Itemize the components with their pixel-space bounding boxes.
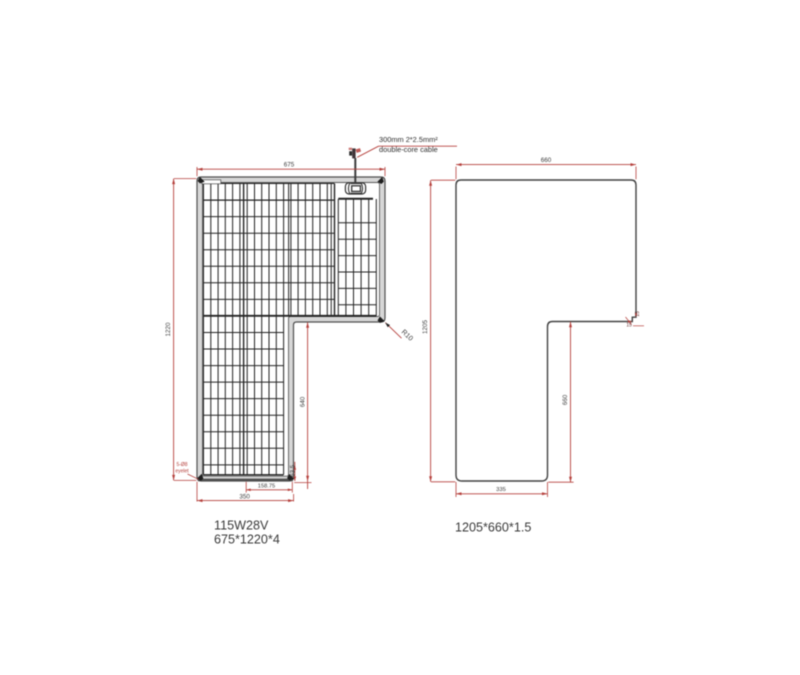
svg-text:5-Ø8: 5-Ø8 [176, 462, 187, 468]
svg-text:675*1220*4: 675*1220*4 [214, 533, 280, 547]
svg-text:675: 675 [284, 162, 295, 169]
svg-text:335: 335 [496, 487, 506, 493]
svg-text:300mm 2*2.5mm²: 300mm 2*2.5mm² [379, 135, 438, 144]
svg-text:115W28V: 115W28V [214, 519, 269, 533]
svg-text:15: 15 [635, 311, 641, 317]
svg-text:350: 350 [239, 494, 250, 501]
svg-text:660: 660 [541, 157, 552, 164]
svg-text:double-core cable: double-core cable [379, 145, 438, 154]
svg-text:63.5: 63.5 [290, 464, 297, 477]
svg-text:640: 640 [299, 396, 306, 407]
svg-text:eyelet: eyelet [175, 469, 189, 475]
svg-text:15: 15 [626, 323, 632, 329]
svg-text:1205: 1205 [422, 320, 429, 335]
svg-text:158.75: 158.75 [258, 483, 275, 489]
svg-text:1205*660*1.5: 1205*660*1.5 [455, 521, 531, 535]
svg-text:1220: 1220 [165, 322, 172, 337]
svg-text:660: 660 [562, 394, 569, 405]
